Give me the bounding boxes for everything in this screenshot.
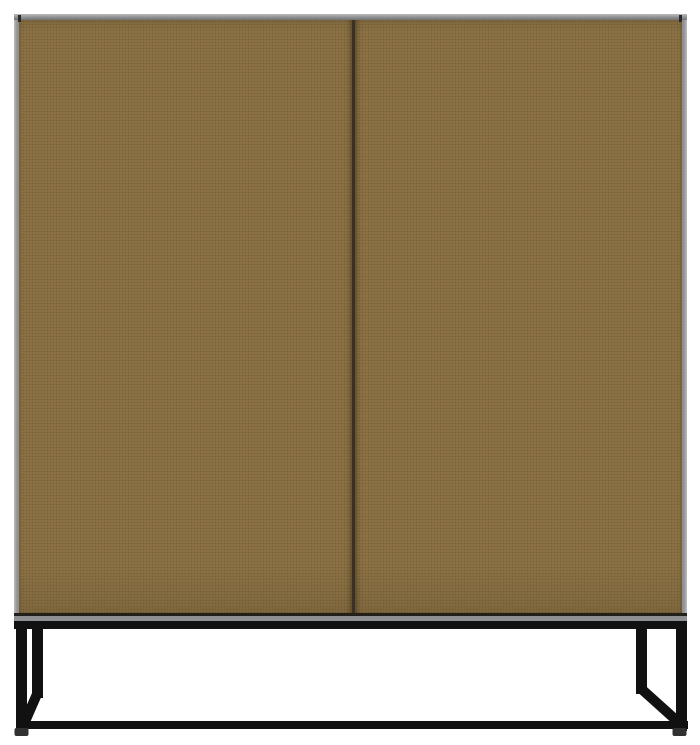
cabinet-doors (19, 20, 682, 613)
back-right-leg (636, 627, 647, 694)
product-photo (0, 0, 700, 745)
cabinet-bottom-edge (14, 616, 687, 621)
left-hinge-mark (18, 15, 21, 22)
right-side-rail (642, 689, 682, 725)
right-door (355, 20, 682, 613)
cabinet-right-edge (682, 14, 687, 621)
front-right-foot (673, 728, 687, 736)
cabinet-body (14, 14, 687, 621)
front-left-leg (16, 627, 27, 731)
front-right-leg (676, 627, 687, 731)
back-left-leg (32, 627, 43, 698)
left-side-rail (24, 693, 38, 725)
left-door (19, 20, 352, 613)
front-left-foot (15, 728, 29, 736)
base-top-rail (14, 621, 687, 629)
right-hinge-mark (679, 15, 682, 22)
base-front-rail (21, 721, 688, 729)
